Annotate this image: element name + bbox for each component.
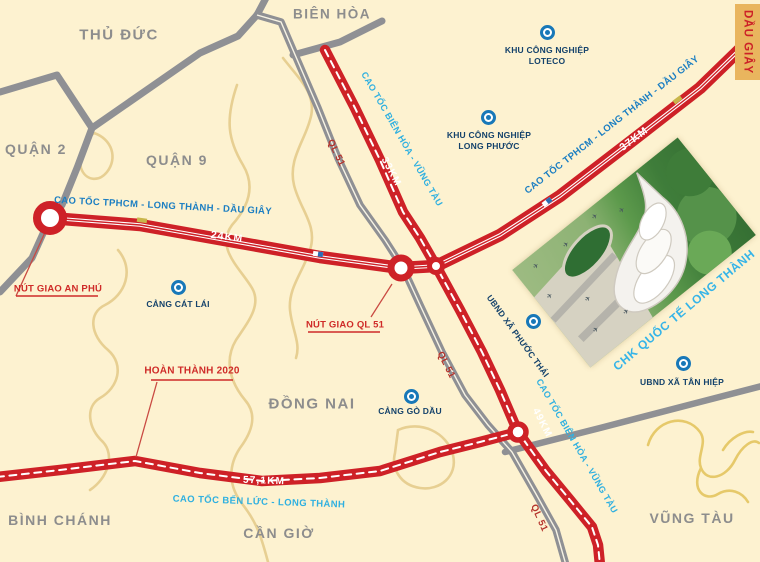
place-label-cang-cat-lai: CẢNG CÁT LÁI bbox=[146, 299, 209, 309]
marker-dot bbox=[531, 319, 536, 324]
marker-ubnd-tan-hiep bbox=[676, 356, 691, 371]
place-label-kcn-loteco: KHU CÔNG NGHIỆP LOTECO bbox=[487, 45, 607, 67]
km-label-571km: 57,1KM bbox=[243, 475, 286, 487]
long-thanh-expressway-map: ✈ ✈ ✈ ✈ ✈ ✈ ✈ ✈ THỦ ĐỨC BIÊN HÒA QUẬN 2 … bbox=[0, 0, 760, 562]
area-label-thu-duc: THỦ ĐỨC bbox=[79, 27, 159, 44]
area-label-dong-nai: ĐỒNG NAI bbox=[269, 396, 356, 413]
area-label-quan-9: QUẬN 9 bbox=[146, 152, 208, 168]
area-label-quan-2: QUẬN 2 bbox=[5, 141, 67, 157]
bien-hoa-road bbox=[293, 21, 382, 55]
note-label-hoan-thanh-2020: HOÀN THÀNH 2020 bbox=[144, 366, 239, 377]
marker-ubnd-phuoc-thai bbox=[526, 314, 541, 329]
place-label-ubnd-tan-hiep: UBND XÃ TÂN HIỆP bbox=[640, 377, 724, 387]
marker-dot bbox=[176, 285, 181, 290]
destination-badge-dau-giay: DẦU GIÂY bbox=[735, 4, 760, 80]
marker-kcn-long-phuoc bbox=[481, 110, 496, 125]
ql51-junction-circle-big bbox=[391, 258, 411, 278]
area-label-can-gio: CẦN GIỜ bbox=[243, 525, 314, 541]
river-line bbox=[226, 85, 268, 562]
marker-dot bbox=[681, 361, 686, 366]
hoanthanh-leader bbox=[136, 382, 157, 457]
nutgiao-ql51-leader bbox=[371, 284, 392, 317]
badge-label: DẦU GIÂY bbox=[742, 10, 754, 74]
junction-label-an-phu: NÚT GIAO AN PHÚ bbox=[14, 284, 102, 295]
marker-dot bbox=[486, 115, 491, 120]
area-label-binh-chanh: BÌNH CHÁNH bbox=[8, 512, 112, 528]
ql51-junction-circle-small bbox=[430, 260, 443, 273]
marker-cang-cat-lai bbox=[171, 280, 186, 295]
area-label-vung-tau: VŨNG TÀU bbox=[649, 510, 734, 526]
junction-label-ql51: NÚT GIAO QL 51 bbox=[306, 320, 384, 331]
benluc-longthanh-road bbox=[0, 432, 518, 481]
area-label-bien-hoa: BIÊN HÒA bbox=[293, 7, 371, 22]
place-label-cang-go-dau: CẢNG GÒ DẦU bbox=[378, 406, 442, 416]
marker-cang-go-dau bbox=[404, 389, 419, 404]
quan9-boundary bbox=[283, 58, 312, 358]
marker-kcn-loteco bbox=[540, 25, 555, 40]
south-junction-circle bbox=[510, 424, 526, 440]
boundary-road-west bbox=[0, 0, 266, 128]
marker-dot bbox=[409, 394, 414, 399]
vehicle-west-cab bbox=[318, 252, 324, 258]
marker-dot bbox=[545, 30, 550, 35]
vung-tau-island bbox=[648, 421, 759, 502]
anphu-junction-circle bbox=[37, 205, 63, 231]
place-label-kcn-long-phuoc: KHU CÔNG NGHIỆP LONG PHƯỚC bbox=[434, 130, 544, 152]
